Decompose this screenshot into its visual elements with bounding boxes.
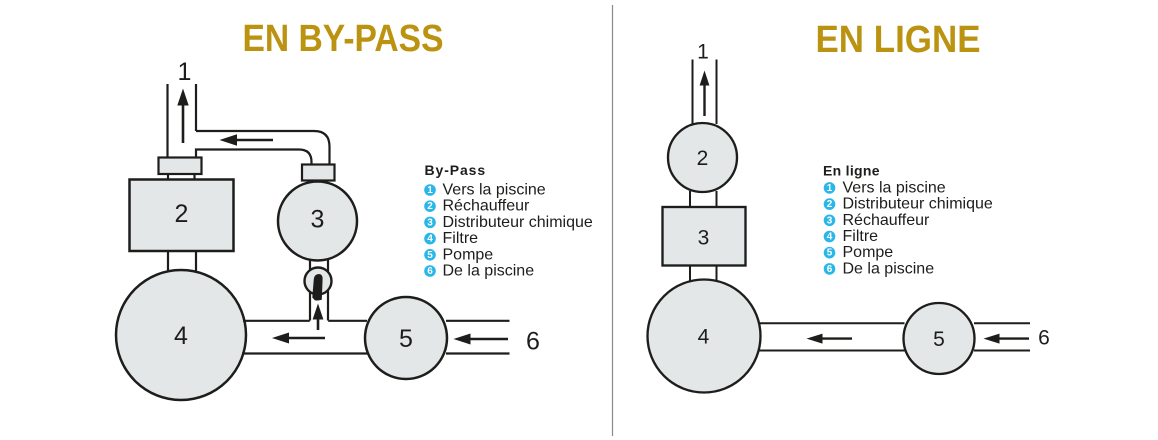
svg-text:De la piscine: De la piscine xyxy=(443,263,535,280)
svg-text:De la piscine: De la piscine xyxy=(843,260,935,277)
svg-text:2: 2 xyxy=(827,199,833,210)
svg-text:En ligne: En ligne xyxy=(823,163,880,179)
svg-text:5: 5 xyxy=(427,250,433,261)
svg-text:2: 2 xyxy=(697,147,709,170)
svg-text:5: 5 xyxy=(933,328,945,351)
svg-text:Distributeur chimique: Distributeur chimique xyxy=(843,196,993,213)
svg-text:3: 3 xyxy=(427,217,433,228)
svg-text:1: 1 xyxy=(697,41,709,64)
svg-text:1: 1 xyxy=(178,58,192,86)
svg-text:By-Pass: By-Pass xyxy=(425,162,487,178)
svg-text:5: 5 xyxy=(827,248,833,259)
svg-text:6: 6 xyxy=(427,266,433,277)
svg-text:6: 6 xyxy=(1038,327,1050,350)
svg-text:3: 3 xyxy=(827,215,833,226)
svg-text:3: 3 xyxy=(311,206,325,234)
svg-text:4: 4 xyxy=(827,232,833,243)
svg-text:Réchauffeur: Réchauffeur xyxy=(443,198,531,215)
svg-text:1: 1 xyxy=(427,185,433,196)
svg-text:Filtre: Filtre xyxy=(843,228,879,245)
svg-text:6: 6 xyxy=(827,264,833,275)
svg-text:6: 6 xyxy=(526,328,540,356)
svg-text:Distributeur chimique: Distributeur chimique xyxy=(443,214,593,231)
svg-text:Filtre: Filtre xyxy=(443,230,479,247)
svg-text:5: 5 xyxy=(399,325,413,353)
svg-text:4: 4 xyxy=(174,322,188,350)
svg-text:2: 2 xyxy=(427,201,433,212)
svg-text:Pompe: Pompe xyxy=(443,246,494,263)
svg-text:3: 3 xyxy=(698,227,710,250)
svg-text:1: 1 xyxy=(827,183,833,194)
svg-text:Vers la piscine: Vers la piscine xyxy=(843,179,946,196)
svg-text:EN LIGNE: EN LIGNE xyxy=(816,19,981,61)
svg-text:4: 4 xyxy=(427,234,433,245)
svg-text:Réchauffeur: Réchauffeur xyxy=(843,212,931,229)
svg-text:Vers la piscine: Vers la piscine xyxy=(443,182,546,199)
svg-text:EN BY-PASS: EN BY-PASS xyxy=(243,18,444,60)
svg-text:2: 2 xyxy=(175,200,189,228)
svg-text:Pompe: Pompe xyxy=(843,244,894,261)
svg-text:4: 4 xyxy=(698,326,710,349)
